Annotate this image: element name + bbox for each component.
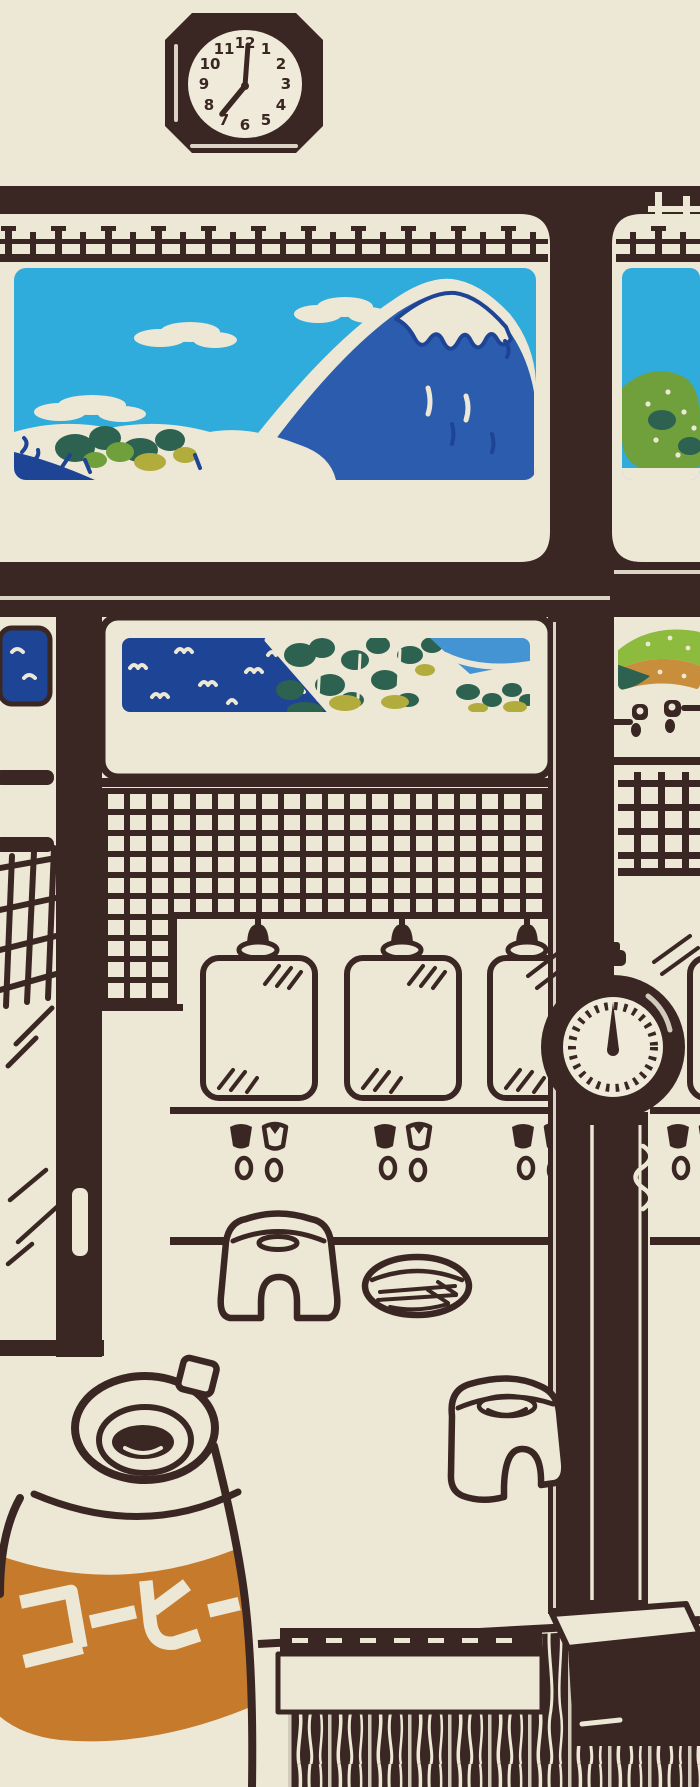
clock-hub [241,82,249,90]
mirror [203,958,315,1098]
window-wall [0,186,700,617]
bathhouse-print: 12 1 2 3 4 5 6 7 8 9 10 11 [0,0,700,1787]
left-window [0,628,50,704]
clock-numeral: 6 [240,116,250,134]
wall-beam [102,778,551,787]
right-pane-scene [622,268,700,480]
counter-edge [170,1107,550,1114]
wash-basin [365,1257,469,1315]
clock-numeral: 5 [261,111,271,129]
transom-window [102,617,551,777]
fuji-scene [14,268,536,480]
clock-numeral: 4 [276,96,286,114]
scale-knob [602,950,626,966]
mirror [690,958,700,1098]
jug-lid-tab [177,1357,218,1396]
window-railing-right [616,226,700,262]
door-rail [0,1340,104,1356]
mirror [347,958,459,1098]
bench [278,1628,542,1712]
clock-numeral: 11 [214,40,235,58]
wall-slat [0,837,54,852]
door-handle [72,1188,88,1256]
clock-numeral: 12 [235,34,256,52]
clock-minute-hand [245,45,248,86]
scale-base [552,1604,700,1746]
window-railing [0,226,548,262]
clock-numeral: 9 [199,75,209,93]
clock-numeral: 2 [276,55,286,73]
wall-clock: 12 1 2 3 4 5 6 7 8 9 10 11 [165,13,323,153]
clock-numeral: 3 [281,75,291,93]
artwork-canvas: 12 1 2 3 4 5 6 7 8 9 10 11 [0,0,700,1787]
transom-scene [122,636,537,718]
clock-numeral: 1 [261,40,271,58]
wall-slat [0,770,54,785]
clock-numeral: 8 [204,96,214,114]
